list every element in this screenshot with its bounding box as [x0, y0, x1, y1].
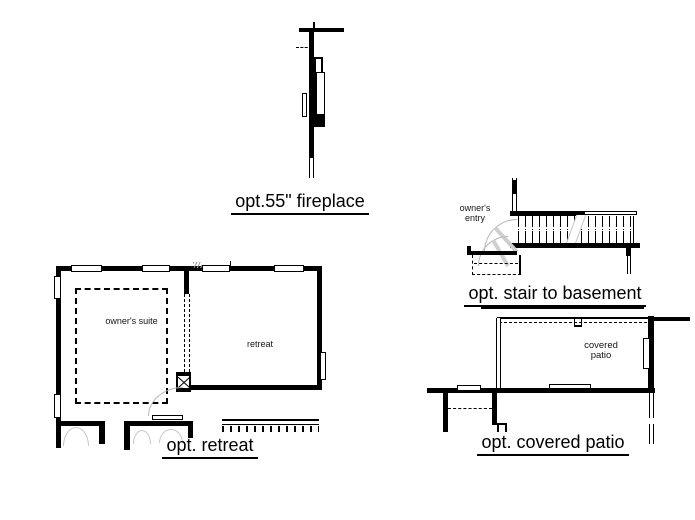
- wall-tick: [230, 261, 231, 267]
- dimension-mark: [193, 262, 202, 268]
- window-symbol: [54, 394, 61, 418]
- window-symbol: [142, 265, 170, 272]
- wall-segment: [510, 243, 640, 248]
- floorplan-sheet: opt.55" fireplace owner's entry opt. sta…: [0, 0, 695, 520]
- retreat-title-text: opt. retreat: [162, 435, 257, 459]
- covered-patio-title: opt. covered patio: [458, 432, 648, 456]
- wall-segment: [512, 180, 517, 194]
- dashed-line: [474, 263, 518, 264]
- wall-cavity: [649, 393, 654, 418]
- retreat-title: opt. retreat: [140, 435, 280, 459]
- wall-return: [497, 423, 507, 432]
- wall-segment: [56, 421, 105, 426]
- stair-basement-title-text: opt. stair to basement: [464, 283, 645, 307]
- covered-patio-room-label: covered patio: [578, 341, 624, 361]
- owners-suite-label: owner's suite: [84, 316, 179, 326]
- stair-landing: [472, 255, 521, 275]
- wall-segment: [654, 317, 690, 321]
- wall-segment: [124, 421, 193, 426]
- wall-segment: [492, 393, 497, 425]
- ceiling-outline-dashed: [75, 288, 168, 404]
- fireplace-title-text: opt.55" fireplace: [231, 191, 368, 215]
- wall-segment: [299, 28, 344, 32]
- wall-segment: [626, 248, 631, 256]
- wall-segment: [99, 426, 105, 444]
- fireplace-title: opt.55" fireplace: [225, 191, 375, 215]
- deck-edge-hatch: [222, 419, 319, 432]
- stair-basement-title: opt. stair to basement: [452, 283, 658, 307]
- wall-cavity: [309, 158, 314, 178]
- window-symbol: [643, 338, 650, 369]
- wall-segment: [189, 385, 322, 390]
- roof-line: [481, 307, 644, 309]
- wall-segment: [184, 266, 189, 294]
- patio-edge-beam: [496, 318, 501, 389]
- dashed-line: [448, 408, 492, 409]
- window-symbol: [320, 352, 326, 380]
- door-leaf: [152, 415, 183, 420]
- roof-overhang-dashed: [499, 322, 647, 323]
- fireplace-insert: [316, 72, 325, 115]
- retreat-room-label: retreat: [225, 339, 295, 349]
- ledge-symbol: [302, 93, 307, 117]
- door-symbol: [549, 384, 591, 389]
- wall-cavity: [649, 424, 654, 444]
- optional-wall-dashed: [184, 294, 190, 372]
- window-symbol: [274, 265, 304, 272]
- post-symbol: [574, 318, 582, 327]
- stair-stringer: [584, 211, 637, 215]
- wall-segment: [467, 246, 471, 255]
- window-symbol: [202, 265, 230, 272]
- covered-patio-title-text: opt. covered patio: [477, 432, 628, 456]
- window-symbol: [457, 385, 481, 391]
- fixture-arc: [63, 427, 89, 446]
- wall-segment: [443, 393, 448, 432]
- owners-entry-label: owner's entry: [449, 203, 501, 223]
- wall-cavity: [627, 256, 631, 274]
- window-symbol: [71, 265, 102, 272]
- stair-edge: [633, 216, 634, 243]
- wall-segment: [124, 426, 130, 450]
- wall-step: [314, 115, 325, 127]
- window-symbol: [54, 276, 61, 299]
